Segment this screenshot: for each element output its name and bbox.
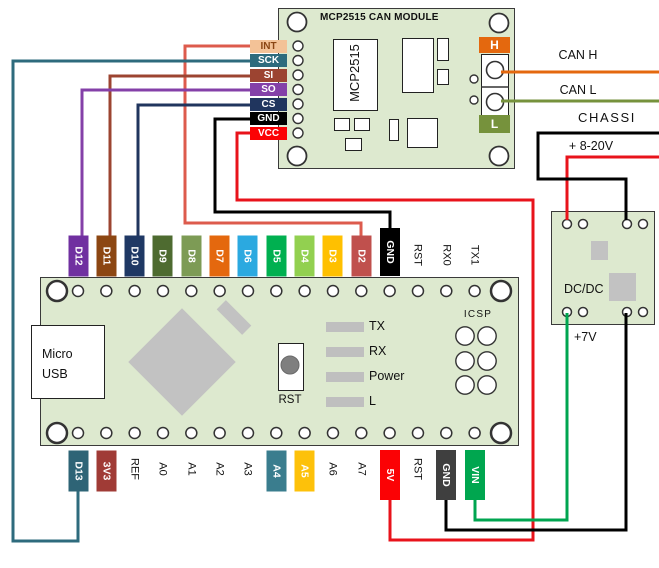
module-pin-hole [293,41,303,51]
pin-hole-bottom [129,428,140,439]
pin-hole-top [356,286,367,297]
pin-hole-bottom [101,428,112,439]
dcdc-pin [579,308,588,317]
mounting-hole [288,147,307,166]
terminal-screw-high [487,62,504,79]
dcdc-gnd-wire [446,313,626,530]
pin-hole-bottom [441,428,452,439]
pin-hole-top [384,286,395,297]
pin-hole-bottom [469,428,480,439]
corner-hole [47,423,67,443]
pin-hole-top [157,286,168,297]
module-pin-hole [293,114,303,124]
module-pad [470,75,478,83]
pin-hole-bottom [271,428,282,439]
module-pad [470,96,478,104]
pin-hole-top [299,286,310,297]
dcdc-pin [639,220,648,229]
mounting-hole [490,147,509,166]
dcdc-pin [563,220,572,229]
pin-hole-top [73,286,84,297]
dcdc-pin [639,308,648,317]
pin-hole-bottom [157,428,168,439]
dcdc-pin [579,220,588,229]
pin-hole-top [129,286,140,297]
pin-hole-top [271,286,282,297]
mounting-hole [490,14,509,33]
supply-wire [567,157,659,220]
terminal-screw-low [487,94,504,111]
wires-and-holes [0,0,659,568]
corner-hole [491,423,511,443]
module-pin-hole [293,56,303,66]
pin-hole-bottom [299,428,310,439]
pin-hole-top [412,286,423,297]
module-pin-hole [293,70,303,80]
pin-hole-top [186,286,197,297]
pin-hole-bottom [412,428,423,439]
pin-hole-bottom [327,428,338,439]
wiring-diagram: MCP2515 CAN MODULE MCP2515 H L CAN H CAN… [0,0,659,568]
so-wire [82,90,252,237]
pin-hole-top [441,286,452,297]
icsp-pin [478,327,496,345]
chassis-wire [538,133,659,220]
icsp-pin [456,376,474,394]
module-pin-hole [293,99,303,109]
icsp-pin [456,327,474,345]
icsp-pin [478,376,496,394]
pin-hole-bottom [186,428,197,439]
pin-hole-top [469,286,480,297]
module-pin-hole [293,85,303,95]
cs-wire [138,105,252,237]
module-pin-hole [293,128,303,138]
reset-button-cap [281,356,299,374]
pin-hole-bottom [73,428,84,439]
pin-hole-top [101,286,112,297]
pin-hole-bottom [214,428,225,439]
pin-hole-bottom [242,428,253,439]
corner-hole [47,281,67,301]
corner-hole [491,281,511,301]
icsp-pin [478,352,496,370]
pin-hole-top [242,286,253,297]
pin-hole-bottom [356,428,367,439]
icsp-pin [456,352,474,370]
dcdc-pin [623,220,632,229]
mounting-hole [288,13,307,32]
pin-hole-top [214,286,225,297]
pin-hole-top [327,286,338,297]
pin-hole-bottom [384,428,395,439]
